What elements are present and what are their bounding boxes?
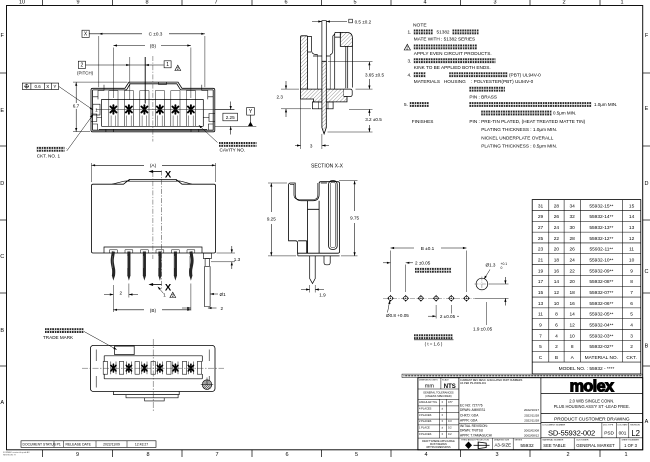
svg-text:DOC TYPE: DOC TYPE — [603, 425, 614, 427]
svg-text:SECTION X-X: SECTION X-X — [311, 164, 344, 170]
svg-text:0.2: 0.2 — [448, 432, 452, 436]
svg-text:5: 5 — [539, 344, 542, 350]
svg-text:14: 14 — [554, 279, 560, 285]
svg-text:SCALE: SCALE — [442, 379, 449, 382]
svg-text:3.: 3. — [408, 58, 412, 63]
svg-text:24: 24 — [554, 225, 560, 231]
svg-text:9.25: 9.25 — [267, 216, 276, 221]
svg-text:WITHIN DIMENSIONS: WITHIN DIMENSIONS — [426, 446, 451, 449]
svg-text:B: B — [555, 355, 558, 361]
svg-text:APPLY EVEN CIRCUIT PRODUCTS.: APPLY EVEN CIRCUIT PRODUCTS. — [414, 51, 492, 56]
svg-text:X: X — [165, 170, 172, 181]
svg-text:26: 26 — [570, 247, 576, 253]
svg-text:0.5μm MIN.: 0.5μm MIN. — [553, 111, 576, 116]
svg-text:3 PLACES: 3 PLACES — [419, 413, 432, 417]
svg-text:4.: 4. — [408, 72, 412, 77]
svg-text:2: 2 — [221, 306, 224, 311]
svg-text:1: 1 — [624, 452, 627, 457]
svg-text:11: 11 — [629, 247, 634, 253]
svg-text:Ø1.3: Ø1.3 — [486, 263, 496, 268]
svg-text:0 PLACES: 0 PLACES — [419, 432, 432, 436]
svg-text:55932-11**: 55932-11** — [590, 247, 614, 253]
svg-text:KINK TO BE APPLIED BOTH ENDS.: KINK TO BE APPLIED BOTH ENDS. — [414, 65, 491, 70]
svg-text:18: 18 — [570, 290, 576, 296]
svg-text:DRWN: TNITSU: DRWN: TNITSU — [460, 428, 484, 432]
svg-text:2: 2 — [81, 63, 84, 69]
svg-text:8: 8 — [555, 312, 558, 318]
svg-text:31: 31 — [538, 203, 544, 209]
svg-text:9.75: 9.75 — [350, 215, 359, 220]
svg-text:3: 3 — [495, 452, 498, 457]
svg-text:E: E — [645, 106, 649, 112]
svg-text:19: 19 — [538, 268, 544, 274]
svg-text:6: 6 — [555, 322, 558, 328]
svg-text:3: 3 — [310, 143, 313, 148]
svg-text:55932-04**: 55932-04** — [589, 322, 613, 328]
svg-text:FINISHES: FINISHES — [412, 119, 434, 124]
svg-text:1 PLACE: 1 PLACE — [419, 425, 430, 429]
svg-text:55932-03**: 55932-03** — [589, 333, 613, 339]
svg-text:E: E — [0, 108, 4, 114]
svg-text:APPR: GDA: APPR: GDA — [460, 419, 478, 423]
svg-text:5: 5 — [355, 452, 358, 457]
svg-text:3: 3 — [630, 333, 633, 339]
svg-text:7: 7 — [539, 333, 542, 339]
svg-text:25: 25 — [538, 236, 544, 242]
svg-text:2: 2 — [630, 344, 633, 350]
svg-text:2 PLACES: 2 PLACES — [419, 419, 432, 423]
svg-text:B ±0.1: B ±0.1 — [421, 246, 435, 251]
svg-text:22: 22 — [570, 268, 576, 274]
svg-text:55932-13**: 55932-13** — [589, 225, 613, 231]
svg-text:molex: molex — [570, 377, 614, 395]
svg-text:2002/02/08: 2002/02/08 — [524, 428, 539, 432]
svg-text:0.5 ±0.2: 0.5 ±0.2 — [355, 20, 372, 25]
svg-text:2: 2 — [566, 452, 569, 457]
svg-text:0.6: 0.6 — [34, 84, 41, 89]
svg-text:28: 28 — [554, 203, 560, 209]
svg-text:23: 23 — [538, 247, 544, 253]
svg-text:MATERIAL NO.: MATERIAL NO. — [585, 355, 618, 361]
svg-text:6: 6 — [284, 0, 287, 6]
svg-text:1: 1 — [620, 0, 623, 6]
svg-text:MATERIALS HOUSING : POLYE: MATERIALS HOUSING : POLYESTER(PBT) UL94V… — [414, 79, 534, 84]
svg-text:P1: P1 — [57, 443, 61, 447]
svg-text:1.9 ±0.05: 1.9 ±0.05 — [473, 327, 493, 332]
svg-text:GENERAL MARKET: GENERAL MARKET — [576, 443, 615, 448]
svg-text:51382: 51382 — [437, 30, 450, 35]
svg-text:DRAWING SIZE: DRAWING SIZE — [494, 438, 510, 441]
svg-text:1.3: 1.3 — [234, 257, 241, 262]
svg-text:(UNLESS SPECIFIED): (UNLESS SPECIFIED) — [425, 394, 452, 398]
svg-text:B: B — [0, 328, 4, 334]
svg-text:12: 12 — [629, 236, 635, 242]
svg-text:55932-14**: 55932-14** — [589, 214, 613, 220]
svg-text:5: 5 — [630, 312, 633, 318]
svg-text:2: 2 — [120, 291, 123, 296]
svg-text:(A): (A) — [150, 163, 157, 168]
svg-text:CHK'D: GDA: CHK'D: GDA — [460, 414, 479, 418]
svg-text:AS PER PS-45499-001: AS PER PS-45499-001 — [460, 382, 487, 385]
svg-text:8: 8 — [146, 452, 149, 457]
svg-text:C: C — [539, 355, 543, 361]
svg-text:20: 20 — [554, 247, 560, 253]
svg-text:29: 29 — [538, 214, 544, 220]
svg-text:PRODUCT CUSTOMER DRAWING: PRODUCT CUSTOMER DRAWING — [554, 417, 630, 423]
svg-text:3.2 ±0.5: 3.2 ±0.5 — [365, 117, 382, 122]
svg-text:14: 14 — [570, 312, 576, 318]
svg-text:X: X — [165, 283, 172, 294]
svg-text:55932-06**: 55932-06** — [589, 301, 613, 307]
svg-text:4: 4 — [555, 333, 558, 339]
svg-text:1 OF 3: 1 OF 3 — [624, 443, 637, 448]
svg-text:0: 0 — [501, 266, 503, 270]
svg-text:55932-07**: 55932-07** — [589, 290, 613, 296]
svg-text:1.0μm MIN.: 1.0μm MIN. — [594, 102, 617, 107]
svg-text:34: 34 — [570, 203, 576, 209]
svg-text:Ø0.8 +0.05: Ø0.8 +0.05 — [386, 313, 409, 318]
svg-text:17: 17 — [538, 279, 544, 285]
svg-text:mm: mm — [425, 383, 435, 389]
svg-text:5.: 5. — [404, 102, 408, 107]
svg-text:C ±0.3: C ±0.3 — [149, 32, 163, 37]
svg-text:9: 9 — [630, 268, 633, 274]
svg-text:5: 5 — [353, 0, 356, 6]
svg-text:22: 22 — [554, 236, 560, 242]
svg-text:PIN : BRASS: PIN : BRASS — [469, 95, 497, 100]
svg-text:2022/10/17: 2022/10/17 — [524, 408, 539, 412]
svg-text:1: 1 — [163, 292, 166, 297]
svg-text:NICKEL UNDERPLATE OVERALL: NICKEL UNDERPLATE OVERALL — [481, 135, 554, 140]
svg-text:4: 4 — [630, 322, 633, 328]
svg-text::: : — [66, 147, 67, 152]
svg-text:CAVITY NO.: CAVITY NO. — [220, 148, 246, 153]
svg-text:Y: Y — [53, 84, 56, 89]
svg-text:2002/08/12: 2002/08/12 — [524, 433, 539, 437]
svg-text:PLUS HOUSING ASS'Y ST -LEAD FR: PLUS HOUSING ASS'Y ST -LEAD FREE. — [554, 404, 630, 409]
svg-text:7: 7 — [630, 290, 633, 296]
svg-text:SERIES: SERIES — [515, 439, 523, 441]
svg-text:INITIAL REVISION:: INITIAL REVISION: — [460, 424, 488, 428]
svg-text:C: C — [0, 254, 4, 260]
svg-text:6: 6 — [285, 452, 288, 457]
svg-text:NTS: NTS — [444, 384, 456, 390]
svg-text:55932: 55932 — [520, 443, 534, 449]
svg-text:001: 001 — [619, 430, 627, 435]
svg-text:DOC PART: DOC PART — [618, 424, 629, 427]
svg-text:55932-02**: 55932-02** — [589, 344, 613, 350]
svg-text:7: 7 — [215, 452, 218, 457]
svg-text:CUSTOMER: CUSTOMER — [576, 440, 589, 442]
svg-text:11: 11 — [538, 312, 543, 318]
svg-text:PLATING THICKNESS : 1.0μm MIN.: PLATING THICKNESS : 1.0μm MIN. — [481, 127, 557, 132]
svg-text:4: 4 — [424, 452, 427, 457]
svg-text:3.65 ±0.5: 3.65 ±0.5 — [365, 72, 385, 77]
svg-text:30: 30 — [570, 225, 576, 231]
svg-text:(PITCH): (PITCH) — [77, 71, 94, 76]
svg-text:1: 1 — [95, 108, 98, 113]
svg-text:REVISION: REVISION — [630, 425, 640, 427]
svg-text:9: 9 — [539, 322, 542, 328]
svg-text:DOCUMENT NUMBER: DOCUMENT NUMBER — [543, 425, 566, 427]
svg-text:CKT.: CKT. — [626, 355, 636, 361]
svg-text:THIRD ANGLE PROJECTION: THIRD ANGLE PROJECTION — [461, 439, 489, 442]
svg-text:FORMAT: master-tb-prod-A3: FORMAT: master-tb-prod-A3 — [3, 451, 30, 454]
svg-text:(B): (B) — [150, 44, 157, 49]
svg-text:1: 1 — [166, 62, 169, 68]
svg-text:2: 2 — [555, 344, 558, 350]
svg-text:2022/11/28: 2022/11/28 — [524, 414, 539, 418]
svg-text:C: C — [645, 269, 649, 275]
svg-text:10: 10 — [554, 301, 560, 307]
svg-text:D: D — [645, 181, 649, 187]
svg-text:1.: 1. — [408, 30, 412, 35]
svg-text:TRADE MARK: TRADE MARK — [43, 335, 74, 340]
svg-text:NOTE: NOTE — [413, 22, 427, 28]
svg-text:(B): (B) — [150, 308, 157, 313]
svg-text:24: 24 — [570, 257, 576, 263]
svg-text:2.25: 2.25 — [226, 115, 235, 120]
svg-text:12: 12 — [554, 290, 560, 296]
svg-text:PIN : PRE-TIN PLATED, (HEAT TR: PIN : PRE-TIN PLATED, (HEAT TREATED MATT… — [469, 119, 585, 124]
svg-text:DOCUMENT STATUS: DOCUMENT STATUS — [23, 443, 57, 447]
svg-text:55932-08**: 55932-08** — [589, 279, 613, 285]
svg-text:10: 10 — [19, 0, 25, 6]
svg-text:55932-12**: 55932-12** — [589, 236, 613, 242]
svg-text:3: 3 — [493, 0, 496, 6]
svg-text:32: 32 — [570, 214, 576, 220]
svg-text:4: 4 — [423, 0, 426, 6]
svg-text:L2: L2 — [631, 429, 640, 438]
svg-text:EC NO: 727776: EC NO: 727776 — [460, 404, 483, 408]
svg-text:APPR: T.YAMAGUCHI: APPR: T.YAMAGUCHI — [460, 433, 492, 437]
svg-text:SHEET NUMBER: SHEET NUMBER — [622, 440, 640, 442]
svg-text:10: 10 — [629, 257, 635, 263]
svg-text:14: 14 — [629, 214, 635, 220]
svg-text:9: 9 — [76, 452, 79, 457]
svg-text:8: 8 — [145, 0, 148, 6]
svg-text:2022/11/28: 2022/11/28 — [524, 419, 539, 423]
svg-text:55932-15**: 55932-15** — [589, 203, 613, 209]
svg-text:A: A — [645, 419, 649, 425]
svg-text:2 ±0.05: 2 ±0.05 — [415, 261, 431, 266]
svg-text:MODEL NO. : 55932 - ****: MODEL NO. : 55932 - **** — [559, 366, 615, 372]
svg-text:15: 15 — [629, 203, 635, 209]
svg-text:PLATING THICKNESS : 0.5μm MIN.: PLATING THICKNESS : 0.5μm MIN. — [481, 144, 557, 149]
svg-text:MATE WITH : 51382 SERIES: MATE WITH : 51382 SERIES — [414, 37, 475, 42]
svg-text:55932-05**: 55932-05** — [589, 312, 613, 318]
svg-text:16: 16 — [554, 268, 560, 274]
svg-text:SD-55932-002: SD-55932-002 — [548, 429, 595, 438]
svg-text:27: 27 — [538, 225, 544, 231]
svg-text:Ø1: Ø1 — [220, 292, 227, 297]
svg-text:8: 8 — [571, 344, 574, 350]
svg-text:PSD: PSD — [604, 430, 614, 435]
svg-text:9: 9 — [76, 0, 79, 6]
svg-text:D: D — [0, 181, 4, 187]
svg-text:2.3: 2.3 — [277, 94, 284, 99]
svg-text:REVISION: H: REVISION: H — [3, 454, 16, 456]
svg-text:( t = 1.6 ): ( t = 1.6 ) — [425, 341, 443, 346]
svg-text:2022/11/09: 2022/11/09 — [103, 443, 120, 447]
svg-text:DRWN: AMIKES1: DRWN: AMIKES1 — [460, 408, 485, 412]
svg-text:55932-10**: 55932-10** — [589, 257, 613, 263]
svg-text:18: 18 — [554, 257, 560, 263]
svg-text:1.9: 1.9 — [319, 293, 326, 298]
svg-text:0.5°: 0.5° — [448, 400, 453, 404]
svg-text:55932-09**: 55932-09** — [589, 268, 613, 274]
svg-text:0.2: 0.2 — [448, 425, 452, 429]
svg-text:12: 12 — [570, 322, 576, 328]
svg-text:MATERIAL NUMBER: MATERIAL NUMBER — [543, 439, 564, 442]
svg-text:CKT. NO. 1: CKT. NO. 1 — [37, 154, 61, 159]
svg-text:13: 13 — [538, 301, 544, 307]
svg-text:ANGULAR TOL: ANGULAR TOL — [419, 400, 438, 404]
svg-text:0.3: 0.3 — [448, 419, 452, 423]
svg-text:13: 13 — [629, 225, 635, 231]
svg-text:26: 26 — [554, 214, 560, 220]
svg-text:6: 6 — [630, 301, 633, 307]
svg-text:15: 15 — [538, 290, 544, 296]
svg-text:7: 7 — [214, 0, 217, 6]
svg-text:A3-SIZE: A3-SIZE — [495, 443, 512, 448]
svg-text:12:43:27: 12:43:27 — [135, 443, 148, 447]
svg-text:28: 28 — [570, 236, 576, 242]
svg-text:(PBT) UL94V-0: (PBT) UL94V-0 — [509, 72, 541, 77]
svg-text:X: X — [46, 84, 49, 89]
svg-text:RELEASE DATE: RELEASE DATE — [66, 443, 92, 447]
svg-text:A: A — [0, 400, 4, 406]
svg-text:B: B — [645, 344, 649, 350]
svg-text:8: 8 — [630, 279, 633, 285]
svg-text:21: 21 — [538, 257, 544, 263]
svg-text:2 ±0.05: 2 ±0.05 — [440, 314, 456, 319]
svg-text:10: 10 — [570, 333, 576, 339]
svg-text:20: 20 — [570, 279, 576, 285]
svg-text:16: 16 — [570, 301, 576, 307]
svg-text:4 PLACES: 4 PLACES — [419, 406, 432, 410]
svg-text:6.7: 6.7 — [73, 104, 80, 109]
svg-text:SEE TABLE: SEE TABLE — [543, 443, 566, 448]
svg-text:DIMENSION UNITS: DIMENSION UNITS — [419, 380, 438, 382]
svg-text:2: 2 — [562, 0, 565, 6]
